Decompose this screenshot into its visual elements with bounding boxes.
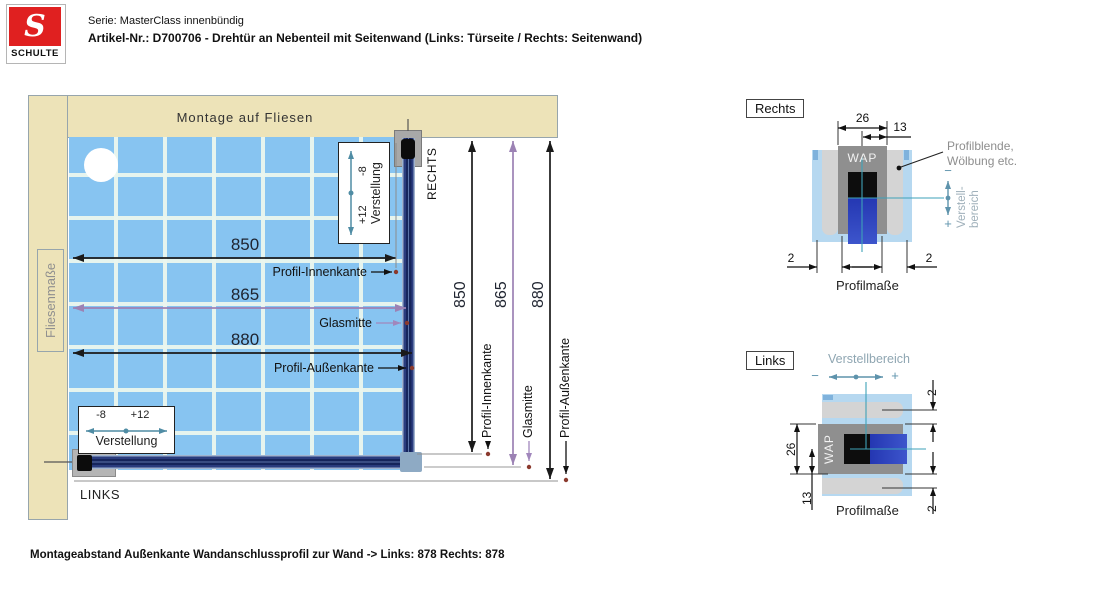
- leader-profil-innenkante-h: Profil-Innenkante: [255, 265, 367, 279]
- links-profilblende-bottom: [822, 478, 903, 494]
- leader-profil-aussenkante-h: Profil-Außenkante: [252, 361, 374, 375]
- links-glass-holder-block: [844, 434, 870, 464]
- leader-profil-aussenkante-v: Profil-Außenkante: [558, 320, 574, 438]
- leader-profil-innenkante-v: Profil-Innenkante: [480, 328, 496, 438]
- links-wap-label: WAP: [822, 431, 836, 467]
- links-gap-bottom-label: 2: [925, 498, 939, 520]
- links-profilblende-top: [822, 402, 903, 418]
- rechts-adjust-plus: +: [941, 216, 955, 231]
- detail-rechts-title: Rechts: [746, 99, 804, 118]
- v-dim-865-label: 865: [493, 266, 511, 324]
- adjust-name-v: Verstellung: [369, 150, 384, 236]
- rechts-glass-panel: [848, 198, 877, 244]
- side-label-rechts: RECHTS: [425, 146, 441, 202]
- links-caption: Profilmaße: [836, 503, 898, 518]
- h-dim-865-label: 865: [195, 285, 295, 305]
- leader-glasmitte-h: Glasmitte: [300, 316, 372, 330]
- rechts-profilblende-left: [822, 150, 838, 235]
- links-adjust-plus: +: [888, 368, 902, 383]
- series-line: Serie: MasterClass innenbündig: [88, 15, 244, 27]
- rechts-gap-right-label: 2: [920, 251, 938, 265]
- glass-side-panel-right: [402, 138, 415, 471]
- rechts-glass-holder-block: [848, 172, 877, 198]
- rechts-dim-26-label: 26: [838, 111, 887, 125]
- rechts-adjust-name-line2: bereich: [969, 168, 981, 228]
- v-dim-850-label: 850: [452, 266, 470, 324]
- v-dim-880-label: 880: [530, 266, 548, 324]
- links-adjust-name: Verstellbereich: [828, 352, 910, 366]
- rechts-wap-label: WAP: [846, 151, 879, 165]
- corner-connector: [400, 452, 422, 472]
- wall-top-label: Montage auf Fliesen: [160, 110, 330, 125]
- rechts-note-line1: Profilblende,: [947, 139, 1014, 153]
- adjust-name-h: Verstellung: [84, 434, 169, 448]
- article-line: Artikel-Nr.: D700706 - Drehtür an Nebent…: [88, 31, 642, 45]
- footer-note: Montageabstand Außenkante Wandanschlussp…: [30, 549, 504, 561]
- technical-drawing-page: S SCHULTE Serie: MasterClass innenbündig…: [0, 0, 1116, 592]
- rechts-notch-right: [904, 150, 909, 160]
- links-notch-top: [823, 395, 833, 400]
- logo-red-square: S: [9, 7, 61, 46]
- glass-door-panel-bottom: [90, 455, 415, 469]
- rechts-caption: Profilmaße: [836, 278, 898, 293]
- links-dim-26-label: 26: [784, 434, 798, 464]
- side-label-links: LINKS: [80, 487, 120, 502]
- links-adjust-minus: −: [808, 368, 822, 383]
- rechts-adjust-name-line1: Verstell-: [956, 164, 968, 228]
- rechts-adjust-minus: −: [941, 163, 955, 178]
- schulte-logo: S SCHULTE: [6, 4, 66, 64]
- logo-brand-text: SCHULTE: [7, 48, 63, 59]
- links-dim-13-label: 13: [800, 484, 814, 512]
- detail-links-title: Links: [746, 351, 794, 370]
- rechts-dim-13-label: 13: [885, 120, 915, 134]
- wall-left-label: Fliesenmaße: [37, 249, 64, 352]
- wall-anchor-block-left: [77, 455, 92, 471]
- links-glass-panel: [870, 434, 907, 464]
- rechts-profilblende-right: [887, 150, 903, 235]
- shower-drain-marker: [84, 148, 118, 182]
- h-dim-850-label: 850: [195, 235, 295, 255]
- adjust-neg-label-h: -8: [90, 409, 112, 421]
- h-dim-880-label: 880: [195, 330, 295, 350]
- adjust-pos-label-h: +12: [126, 409, 154, 421]
- leader-glasmitte-v: Glasmitte: [521, 376, 537, 438]
- rechts-notch-left: [813, 150, 818, 160]
- logo-s-icon: S: [9, 7, 61, 46]
- links-gap-top-label: 2: [925, 382, 939, 404]
- wall-anchor-block-top: [401, 139, 415, 159]
- rechts-gap-left-label: 2: [782, 251, 800, 265]
